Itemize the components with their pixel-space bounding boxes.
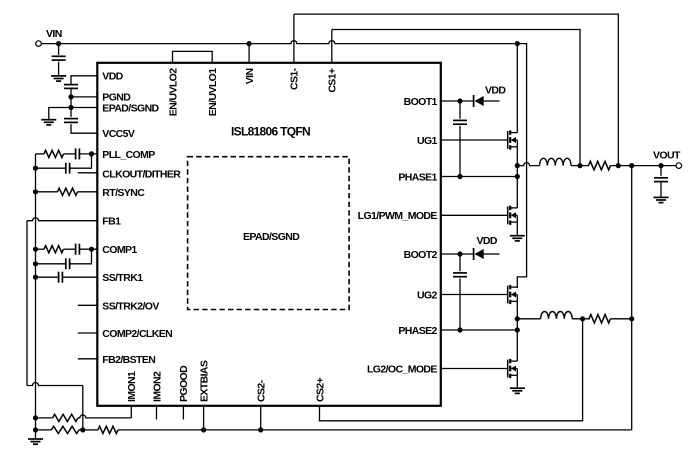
svg-text:LG1/PWM_MODE: LG1/PWM_MODE	[358, 210, 438, 222]
svg-text:SS/TRK1: SS/TRK1	[102, 272, 143, 284]
svg-text:VDD: VDD	[485, 85, 506, 97]
svg-text:SS/TRK2/OV: SS/TRK2/OV	[102, 300, 159, 312]
svg-text:PHASE1: PHASE1	[398, 171, 437, 183]
svg-text:EXTBIAS: EXTBIAS	[198, 360, 210, 402]
svg-text:CS1+: CS1+	[327, 68, 339, 93]
svg-text:VIN: VIN	[46, 28, 62, 40]
svg-text:CS2+: CS2+	[314, 377, 326, 402]
svg-text:IMON1: IMON1	[126, 371, 138, 402]
svg-text:VOUT: VOUT	[653, 150, 681, 162]
svg-text:EPAD/SGND: EPAD/SGND	[102, 102, 159, 114]
svg-text:BOOT2: BOOT2	[404, 249, 438, 261]
svg-text:CS1-: CS1-	[289, 67, 301, 90]
svg-text:FB2/BSTEN: FB2/BSTEN	[102, 354, 155, 366]
svg-text:VDD: VDD	[102, 70, 123, 82]
svg-text:UG1: UG1	[417, 135, 438, 147]
svg-text:CS2-: CS2-	[256, 379, 268, 402]
svg-text:RT/SYNC: RT/SYNC	[102, 187, 145, 199]
svg-text:PLL_COMP: PLL_COMP	[102, 149, 155, 161]
svg-text:UG2: UG2	[417, 289, 438, 301]
svg-text:VDD: VDD	[477, 235, 498, 247]
svg-text:VCC5V: VCC5V	[102, 128, 135, 140]
svg-text:PGOOD: PGOOD	[178, 365, 190, 402]
svg-text:EN/UVLO2: EN/UVLO2	[167, 68, 179, 116]
svg-text:COMP1: COMP1	[102, 244, 137, 256]
svg-text:VIN: VIN	[244, 68, 256, 84]
svg-text:PHASE2: PHASE2	[398, 325, 437, 337]
svg-text:BOOT1: BOOT1	[404, 96, 438, 108]
svg-text:COMP2/CLKEN: COMP2/CLKEN	[102, 328, 172, 340]
svg-text:FB1: FB1	[102, 216, 121, 228]
svg-text:EPAD/SGND: EPAD/SGND	[243, 231, 300, 243]
svg-text:CLKOUT/DITHER: CLKOUT/DITHER	[102, 168, 181, 180]
svg-text:ISL81806 TQFN: ISL81806 TQFN	[231, 125, 310, 139]
svg-text:EN/UVLO1: EN/UVLO1	[207, 68, 219, 116]
svg-text:IMON2: IMON2	[151, 371, 163, 402]
svg-text:LG2/OC_MODE: LG2/OC_MODE	[367, 363, 437, 375]
